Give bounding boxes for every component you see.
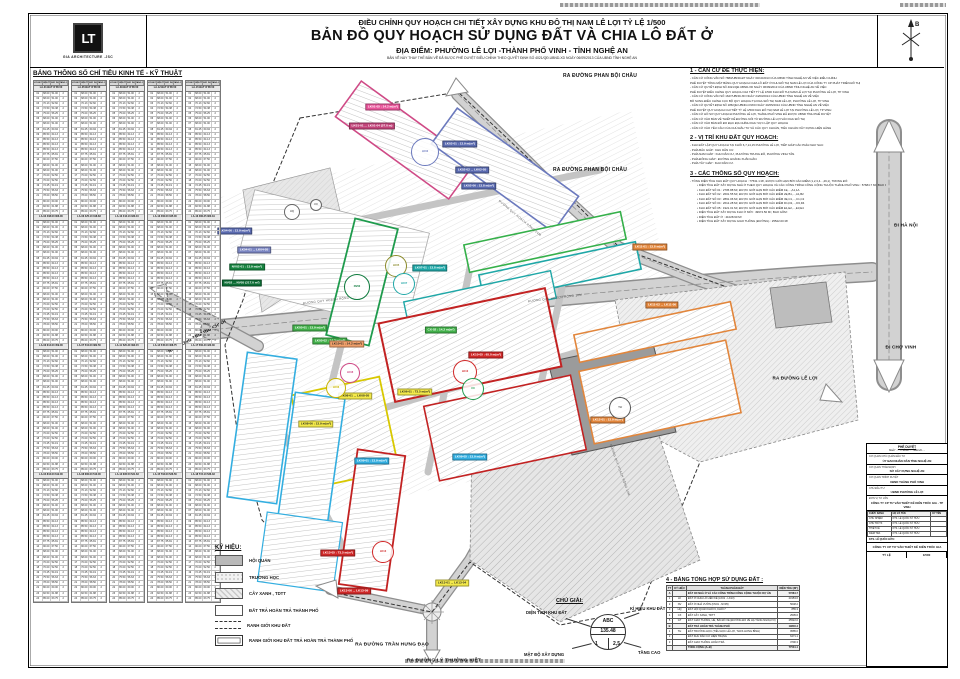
parameter-cell: 51.00 (51, 298, 60, 302)
parameter-cell: 70.13 (119, 360, 128, 364)
parameter-cell: 63.75 (89, 597, 98, 601)
parameter-cell: 51.00 (203, 484, 212, 488)
parameter-cell: 2 (98, 406, 107, 410)
parameter-cell: 03 (110, 102, 119, 106)
parameter-cell: 52.50 (127, 561, 136, 565)
parameter-cell: 2 (174, 323, 183, 327)
parameter-cell: 24 (72, 339, 81, 343)
parameter-cell: 2 (98, 355, 107, 359)
parameter-cell: 72.25 (195, 442, 204, 446)
parameter-cell: 52.50 (165, 174, 174, 178)
parameter-cell: 2 (98, 318, 107, 322)
parameter-cell: 2 (98, 597, 107, 601)
parameter-cell: 2 (98, 422, 107, 426)
parameter-cell: 75.00 (195, 241, 204, 245)
parameter-cell: 70.00 (157, 432, 166, 436)
parameter-cell: 13 (148, 540, 157, 544)
parameter-cell: 2 (174, 386, 183, 390)
parameter-cell: 54.38 (89, 107, 98, 111)
parameter-cell: 18 (34, 179, 43, 183)
parameter-cell: 09 (34, 520, 43, 524)
parameter-cell: 2 (174, 303, 183, 307)
parameter-cell: 64.13 (165, 401, 174, 405)
parameter-cell: 19 (186, 184, 195, 188)
parameter-cell: 2 (212, 272, 221, 276)
parameter-cell: 2 (98, 128, 107, 132)
parameter-cell: 68.00 (119, 479, 128, 483)
parameter-cell: 85.00 (195, 210, 204, 214)
parameter-cell: 54.19 (89, 313, 98, 317)
parameter-cell: 14 (110, 545, 119, 549)
parameter-cell: 78.00 (81, 581, 90, 585)
lot-callout: LK09-05 : 13.9 m(m²) (452, 454, 487, 461)
parameter-cell: 2 (174, 210, 183, 214)
parameter-cell: 64.13 (203, 530, 212, 534)
parameter-cell: 06 (148, 375, 157, 379)
parameter-cell: 2 (60, 122, 69, 126)
parameter-cell: 2 (60, 246, 69, 250)
parameter-cell: 51.00 (51, 169, 60, 173)
parameter-cell: 10 (110, 396, 119, 400)
parameter-cell: 78.00 (157, 581, 166, 585)
parameter-cell: 03 (186, 231, 195, 235)
parameter-cell: 2 (60, 514, 69, 518)
parameter-cell: 68.00 (43, 556, 52, 560)
parameter-cell: 2 (136, 102, 145, 106)
parameter-cell: 75.00 (43, 370, 52, 374)
parameter-cell: 52.50 (203, 432, 212, 436)
parameter-cell: 87.75 (157, 282, 166, 286)
parameter-cell: 2 (136, 231, 145, 235)
parameter-cell: 2 (174, 329, 183, 333)
parameter-cell: 67.50 (51, 545, 60, 549)
parameter-cell: 75.50 (157, 318, 166, 322)
parameter-cell: 51.00 (203, 479, 212, 483)
parameter-cell: 05 (34, 241, 43, 245)
parameter-cell: 85.50 (81, 406, 90, 410)
parameter-cell: 2 (60, 194, 69, 198)
parameter-cell: 2 (136, 571, 145, 575)
parameter-cell: 65.81 (89, 153, 98, 157)
parameter-cell: 60.94 (89, 128, 98, 132)
parameter-cell: 87.75 (43, 153, 52, 157)
parameter-cell: 64.13 (51, 525, 60, 529)
parameter-cell: 2 (98, 164, 107, 168)
parameter-cell: 68.00 (81, 221, 90, 225)
parameter-cell: 51.00 (203, 293, 212, 297)
parameter-cell: 19 (186, 313, 195, 317)
parameter-cell: 2 (212, 303, 221, 307)
parameter-cell: 51.00 (165, 293, 174, 297)
note-section-title: 2 - VỊ TRÍ KHU ĐẤT QUY HOẠCH: (690, 135, 886, 141)
parameter-cell: 58.50 (89, 581, 98, 585)
parameter-cell: 68.00 (81, 550, 90, 554)
parameter-cell: 02 (148, 97, 157, 101)
parameter-cell: 52.50 (203, 308, 212, 312)
parameter-cell: 21 (72, 581, 81, 585)
parameter-cell: 56.25 (89, 370, 98, 374)
parameter-cell: 61.88 (89, 463, 98, 467)
parameter-cell: 02 (72, 355, 81, 359)
parameter-cell: 2 (136, 581, 145, 585)
parameter-cell: 51.00 (51, 355, 60, 359)
parameter-cell: 12 (110, 148, 119, 152)
parameter-cell: 54.19 (203, 442, 212, 446)
legend-label: CÂY XANH , TDTT (249, 591, 286, 596)
parameter-cell: 51.00 (203, 550, 212, 554)
parameter-cell: 64.13 (203, 277, 212, 281)
parameter-cell: 68.00 (157, 550, 166, 554)
parameter-cell: 21 (148, 194, 157, 198)
parameter-cell: 2 (60, 282, 69, 286)
parameter-cell: 85.00 (195, 339, 204, 343)
parameter-cell: 2 (98, 530, 107, 534)
parameter-cell: 68.00 (195, 422, 204, 426)
parameter-cell: 70.00 (119, 308, 128, 312)
parameter-cell: 65.81 (89, 411, 98, 415)
parameter-cell: 22 (148, 457, 157, 461)
parameter-cell: 2 (136, 148, 145, 152)
parameter-cell: 72.25 (195, 313, 204, 317)
parameter-cell: 85.50 (195, 138, 204, 142)
parameter-cell: 56.63 (51, 318, 60, 322)
parameter-cell: 52.60 (51, 231, 60, 235)
parameter-cell: 2 (136, 535, 145, 539)
parameter-cell: 2 (212, 246, 221, 250)
parameter-cell: 85.50 (195, 133, 204, 137)
parameter-cell: 80.00 (119, 586, 128, 590)
parameter-cell: 2 (212, 447, 221, 451)
parameter-cell: 2 (60, 432, 69, 436)
parameter-cell: 85.50 (195, 520, 204, 524)
parameter-cell: 64.13 (51, 520, 60, 524)
parameter-cell: 54.38 (51, 365, 60, 369)
parameter-cell: 22 (34, 329, 43, 333)
parameter-cell: 2 (98, 107, 107, 111)
lot-callout: LK09-01 : 13.9 m(m²) (354, 458, 389, 465)
parameter-cell: 75.50 (43, 447, 52, 451)
parameter-cell: 18 (34, 308, 43, 312)
lot-callout: LK08-06 : 13.9 m(m²) (298, 421, 333, 428)
parameter-cell: 81.25 (119, 514, 128, 518)
parameter-cell: 52.50 (127, 308, 136, 312)
parameter-cell: 70.00 (119, 179, 128, 183)
parameter-cell: 63.75 (127, 210, 136, 214)
parameter-cell: 85.50 (195, 535, 204, 539)
parameter-cell: 02 (110, 97, 119, 101)
parameter-cell: 2 (136, 200, 145, 204)
parameter-cell: 2 (174, 509, 183, 513)
parameter-cell: 58.50 (165, 194, 174, 198)
parameter-cell: 78.00 (119, 581, 128, 585)
parameter-cell: 2 (98, 576, 107, 580)
parameter-cell: 01 (186, 92, 195, 96)
parameter-cell: 2 (98, 375, 107, 379)
parameter-cell: 78.00 (119, 323, 128, 327)
parameter-cell: 58.50 (127, 323, 136, 327)
parameter-cell: 70.13 (81, 489, 90, 493)
parameter-cell: 51.00 (165, 427, 174, 431)
parameter-cell: 52.60 (51, 360, 60, 364)
parameter-cell: 60.00 (127, 329, 136, 333)
parameter-cell: 68.00 (81, 122, 90, 126)
parameter-cell: 2 (98, 484, 107, 488)
parameter-cell: 09 (148, 262, 157, 266)
parameter-cell: 2 (174, 194, 183, 198)
parameter-cell: 78.00 (195, 323, 204, 327)
parameter-cell: 61.88 (127, 463, 136, 467)
parameter-cell: 61.88 (51, 205, 60, 209)
parameter-cell: 2 (98, 329, 107, 333)
parameter-cell: 2 (98, 158, 107, 162)
parameter-cell: 51.00 (51, 484, 60, 488)
parameter-cell: 68.00 (195, 427, 204, 431)
block-code-circle: LK06 (326, 378, 346, 398)
parameter-cell: 72.50 (43, 494, 52, 498)
parameter-cell: 51.00 (203, 92, 212, 96)
parameter-cell: 01 (72, 479, 81, 483)
parameter-cell: 11 (72, 143, 81, 147)
parameter-cell: 01 (148, 479, 157, 483)
parameter-cell: 21 (72, 452, 81, 456)
parameter-cell: 02 (110, 355, 119, 359)
parameter-cell: 51.00 (89, 550, 98, 554)
parameter-cell: 20 (34, 447, 43, 451)
parameter-cell: 72.25 (195, 184, 204, 188)
parameter-cell: 03 (186, 489, 195, 493)
parameter-cell: 68.00 (81, 427, 90, 431)
parameter-cell: 2 (98, 457, 107, 461)
parameter-cell: 51.00 (89, 422, 98, 426)
parameter-cell: 68.00 (157, 92, 166, 96)
parameter-cell: 75.00 (195, 370, 204, 374)
parameter-cell: 64.13 (165, 525, 174, 529)
parameter-cell: 2 (136, 566, 145, 570)
parameter-cell: 2 (174, 540, 183, 544)
parameter-cell: 22 (34, 586, 43, 590)
parameter-cell: 24 (186, 339, 195, 343)
parameter-cell: 06 (110, 117, 119, 121)
parameter-cell: 85.00 (119, 339, 128, 343)
parameter-cell: 63.75 (51, 468, 60, 472)
parameter-cell: 85.50 (119, 396, 128, 400)
parameter-cell: 20 (72, 576, 81, 580)
parameter-cell: 54.19 (203, 571, 212, 575)
parameter-cell: 2 (136, 406, 145, 410)
parameter-cell: 65.81 (51, 540, 60, 544)
parameter-cell: 07 (72, 509, 81, 513)
parameter-cell: 52.50 (165, 566, 174, 570)
parameter-cell: 2 (212, 535, 221, 539)
parameter-cell: 05 (72, 499, 81, 503)
block-code-circle: HQ (284, 204, 300, 220)
parameter-cell: 64.13 (89, 262, 98, 266)
parameter-cell: 14 (148, 545, 157, 549)
parameter-cell: 64.13 (203, 267, 212, 271)
parameter-cell: 03 (148, 489, 157, 493)
parameter-cell: 90.00 (81, 545, 90, 549)
parameter-cell: 2 (212, 339, 221, 343)
parameter-cell: 2 (98, 138, 107, 142)
parameter-cell: 64.13 (51, 401, 60, 405)
parameter-cell: 2 (174, 92, 183, 96)
parameter-cell: 21 (110, 194, 119, 198)
parameter-cell: 85.50 (81, 272, 90, 276)
parameter-cell: 2 (174, 494, 183, 498)
parameter-cell: 64.13 (203, 138, 212, 142)
parameter-cell: 60.00 (203, 329, 212, 333)
parameter-cell: 81.25 (195, 514, 204, 518)
parameter-cell: 2 (60, 597, 69, 601)
parameter-cell: 20 (72, 447, 81, 451)
parameter-cell: 16 (34, 427, 43, 431)
parameter-cell: 07 (148, 380, 157, 384)
parameter-cell: 65.81 (165, 153, 174, 157)
parameter-cell: 80.00 (195, 200, 204, 204)
parameter-cell: 2 (174, 236, 183, 240)
parameter-cell: 52.60 (203, 102, 212, 106)
parameter-cell: 2 (212, 241, 221, 245)
parameter-cell: 07 (186, 122, 195, 126)
parameter-cell: 52.50 (203, 566, 212, 570)
parameter-cell: 08 (186, 514, 195, 518)
parameter-cell: 10 (110, 138, 119, 142)
parameter-cell: 52.60 (89, 231, 98, 235)
parameter-cell: 64.13 (89, 520, 98, 524)
parameter-cell: 21 (110, 323, 119, 327)
parameter-cell: 2 (136, 318, 145, 322)
parameter-cell: 85.50 (43, 406, 52, 410)
parameter-cell: 51.00 (127, 298, 136, 302)
legend-item: CÂY XANH , TDTT (215, 588, 365, 599)
parameter-cell: 2 (212, 350, 221, 354)
parameter-cell: 22 (110, 457, 119, 461)
parameter-cell: 56.63 (127, 576, 136, 580)
parameter-cell: 01 (148, 221, 157, 225)
parameter-cell: 2 (98, 581, 107, 585)
parameter-cell: 51.00 (89, 97, 98, 101)
parameter-cell: 2 (136, 164, 145, 168)
parameter-cell: 2 (136, 122, 145, 126)
parameter-cell: 2 (212, 463, 221, 467)
parameter-cell: 2 (174, 282, 183, 286)
parameter-cell: 68.00 (157, 355, 166, 359)
parameter-cell: 80.00 (157, 457, 166, 461)
parameter-cell: 19 (72, 313, 81, 317)
parameter-cell: 75.00 (157, 499, 166, 503)
parameter-cell: 64.13 (165, 138, 174, 142)
parameter-cell: 2 (60, 251, 69, 255)
parameter-cell: 78.00 (43, 194, 52, 198)
parameter-cell: 68.00 (195, 509, 204, 513)
parameter-cell: 09 (148, 520, 157, 524)
parameter-cell: 10 (72, 396, 81, 400)
parameter-cell: 82.50 (195, 592, 204, 596)
parameter-cell: 87.75 (157, 153, 166, 157)
parameter-cell: 81.25 (157, 128, 166, 132)
parameter-cell: 72.50 (119, 494, 128, 498)
parameter-cell: 02 (110, 484, 119, 488)
parameter-cell: 67.50 (203, 416, 212, 420)
parameter-cell: 58.50 (203, 452, 212, 456)
parameter-cell: 2 (60, 535, 69, 539)
parameter-cell: 52.50 (127, 179, 136, 183)
parameter-cell: 85.50 (81, 530, 90, 534)
parameter-cell: 2 (174, 117, 183, 121)
parameter-cell: 2 (60, 520, 69, 524)
parameter-cell: 51.00 (51, 97, 60, 101)
parameter-cell: 90.00 (195, 416, 204, 420)
parameter-cell: 70.00 (157, 174, 166, 178)
column-header: LÔ ĐẤT (34, 81, 43, 85)
parameter-cell: 75.50 (81, 576, 90, 580)
parameter-cell: 58.50 (127, 452, 136, 456)
parameter-cell: 2 (212, 484, 221, 488)
title-block-row: CƠ QUAN CHỦ QUẢN ĐẦU TƯỦY BAN NHÂN DÂN T… (867, 454, 947, 465)
parameter-cell: 04 (34, 365, 43, 369)
parameter-cell: 07 (148, 251, 157, 255)
parameter-cell: 2 (174, 586, 183, 590)
parameter-cell: 51.00 (127, 169, 136, 173)
parameter-cell: 2 (212, 391, 221, 395)
parameter-cell: 2 (60, 571, 69, 575)
parameter-cell: 23 (34, 463, 43, 467)
parameter-cell: 70.00 (157, 179, 166, 183)
parameter-cell: 68.00 (195, 221, 204, 225)
parameter-cell: 70.00 (195, 561, 204, 565)
parameter-cell: 60.94 (89, 386, 98, 390)
parameter-cell: 51.00 (165, 350, 174, 354)
parameter-cell: 87.75 (119, 153, 128, 157)
parameter-cell: 78.00 (157, 194, 166, 198)
parameter-cell: 16 (110, 169, 119, 173)
parameter-cell: 72.50 (157, 107, 166, 111)
parameter-cell: 05 (110, 112, 119, 116)
parameter-cell: 2 (60, 226, 69, 230)
parameter-cell: 68.00 (195, 550, 204, 554)
parameter-cell: 2 (60, 210, 69, 214)
parameter-cell: 09 (110, 520, 119, 524)
parameter-cell: 87.75 (119, 540, 128, 544)
parameter-cell: 2 (174, 360, 183, 364)
parameter-cell: 05 (186, 499, 195, 503)
parameter-cell: 63.75 (127, 597, 136, 601)
parameter-cell: 2 (136, 550, 145, 554)
parameter-cell: 04 (72, 365, 81, 369)
parameter-cell: 68.00 (119, 92, 128, 96)
parameter-cell: 61.88 (127, 334, 136, 338)
parameter-cell: 18 (110, 566, 119, 570)
parameter-cell: 78.00 (81, 194, 90, 198)
parameter-cell: 51.00 (127, 550, 136, 554)
parameter-cell: 85.50 (119, 530, 128, 534)
parameter-cell: 68.00 (81, 509, 90, 513)
parameter-cell: 85.50 (119, 277, 128, 281)
legend-swatch-dashed (215, 621, 241, 629)
legend-item: ĐẤT TRẢ HOÀN TRẢ THÀNH PHỐ (215, 605, 365, 616)
parameter-cell: 52.50 (203, 179, 212, 183)
note-section: 2 - VỊ TRÍ KHU ĐẤT QUY HOẠCH:- KHU ĐẤT L… (690, 135, 886, 166)
parameter-cell: 2 (212, 210, 221, 214)
parameter-cell: 68.00 (157, 298, 166, 302)
parameter-cell: 17 (186, 174, 195, 178)
parameter-cell: 82.50 (43, 463, 52, 467)
parameter-cell: 04 (72, 236, 81, 240)
parameter-cell: 68.00 (157, 293, 166, 297)
parameter-cell: 14 (148, 416, 157, 420)
parameter-cell: 21 (72, 323, 81, 327)
parameter-cell: 04 (110, 494, 119, 498)
